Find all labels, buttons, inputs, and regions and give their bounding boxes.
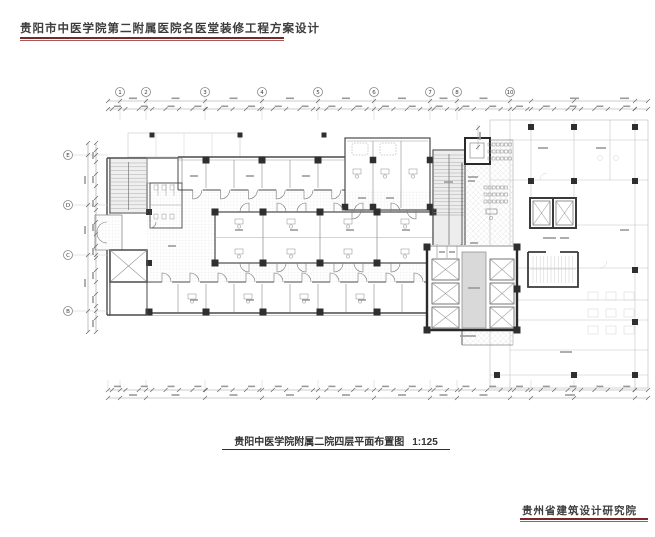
plan-scale: 1:125 [412,437,438,448]
svg-text:3: 3 [203,90,207,96]
svg-text:E: E [66,153,70,159]
svg-text:C: C [66,253,70,259]
svg-text:7: 7 [428,90,432,96]
svg-text:5: 5 [316,90,320,96]
svg-text:B: B [66,309,70,315]
svg-text:6: 6 [372,90,376,96]
plan-caption: 贵阳中医学院附属二院四层平面布置图1:125 [212,433,460,448]
svg-text:10: 10 [507,90,514,96]
svg-text:1: 1 [118,90,122,96]
svg-text:8: 8 [455,90,459,96]
floor-plan-drawing: 1234567810EDCB [0,0,655,537]
title-underline [20,37,284,39]
svg-text:4: 4 [260,90,264,96]
sheet-title: 贵阳市中医学院第二附属医院名医堂装修工程方案设计 [20,20,320,36]
company-underline-2 [520,521,648,522]
company-name: 贵州省建筑设计研究院 [522,503,637,518]
title-underline-2 [20,40,284,41]
plan-caption-text: 贵阳中医学院附属二院四层平面布置图 [234,437,404,448]
company-underline [520,518,648,520]
svg-text:2: 2 [144,90,148,96]
caption-underline [222,449,450,450]
drawing-sheet: { "header": { "title": "贵阳市中医学院第二附属医院名医堂… [0,0,655,537]
svg-text:D: D [66,203,70,209]
